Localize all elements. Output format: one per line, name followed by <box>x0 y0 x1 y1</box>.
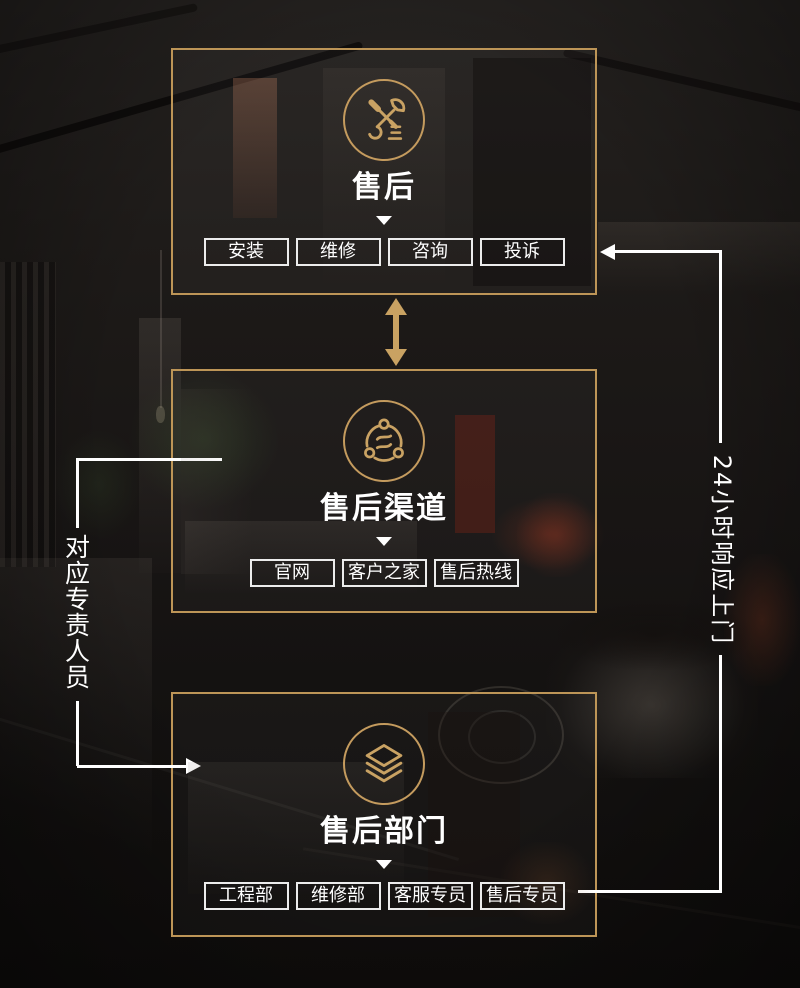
right-connector-vertical <box>719 250 722 443</box>
after-sales-diagram: 售后 安装 维修 咨询 投诉 <box>0 0 800 988</box>
tag-row: 工程部 维修部 客服专员 售后专员 <box>204 882 565 910</box>
section-after-sales: 售后 安装 维修 咨询 投诉 <box>171 48 597 295</box>
section-title: 售后 <box>352 173 416 203</box>
down-triangle-icon <box>376 860 392 869</box>
repair-tools-icon <box>343 79 425 161</box>
channels-icon <box>343 400 425 482</box>
left-vertical-label: 对应专责人员 <box>64 535 91 691</box>
right-vertical-label: 24小时响应上门 <box>709 445 735 655</box>
right-connector-top-horizontal <box>613 250 722 253</box>
tag-engineering-dept: 工程部 <box>204 882 289 910</box>
bg-red-artwork <box>455 415 495 533</box>
tag-service-specialist: 客服专员 <box>388 882 473 910</box>
section-title: 售后部门 <box>320 817 448 847</box>
down-triangle-icon <box>376 216 392 225</box>
tag-complaint: 投诉 <box>480 238 565 266</box>
right-connector-bottom-horizontal <box>578 890 722 893</box>
section-title: 售后渠道 <box>320 494 448 524</box>
tag-customer-home: 客户之家 <box>342 559 427 587</box>
left-connector-bottom-horizontal <box>77 765 187 768</box>
tag-maintenance-dept: 维修部 <box>296 882 381 910</box>
tag-hotline: 售后热线 <box>434 559 519 587</box>
right-connector-vertical <box>719 655 722 893</box>
tag-row: 官网 客户之家 售后热线 <box>250 559 519 587</box>
bg-artwork <box>233 78 277 218</box>
tag-consult: 咨询 <box>388 238 473 266</box>
down-triangle-icon <box>376 537 392 546</box>
left-connector-vertical <box>76 458 79 528</box>
tag-official-site: 官网 <box>250 559 335 587</box>
layers-icon <box>343 723 425 805</box>
tag-row: 安装 维修 咨询 投诉 <box>204 238 565 266</box>
section-channels: 售后渠道 官网 客户之家 售后热线 <box>171 369 597 613</box>
tag-install: 安装 <box>204 238 289 266</box>
left-connector-vertical <box>76 701 79 766</box>
double-arrow-icon <box>383 298 409 366</box>
bg-red-sofa <box>517 493 597 577</box>
section-departments: 售后部门 工程部 维修部 客服专员 售后专员 <box>171 692 597 937</box>
tag-repair: 维修 <box>296 238 381 266</box>
tag-aftersales-specialist: 售后专员 <box>480 882 565 910</box>
